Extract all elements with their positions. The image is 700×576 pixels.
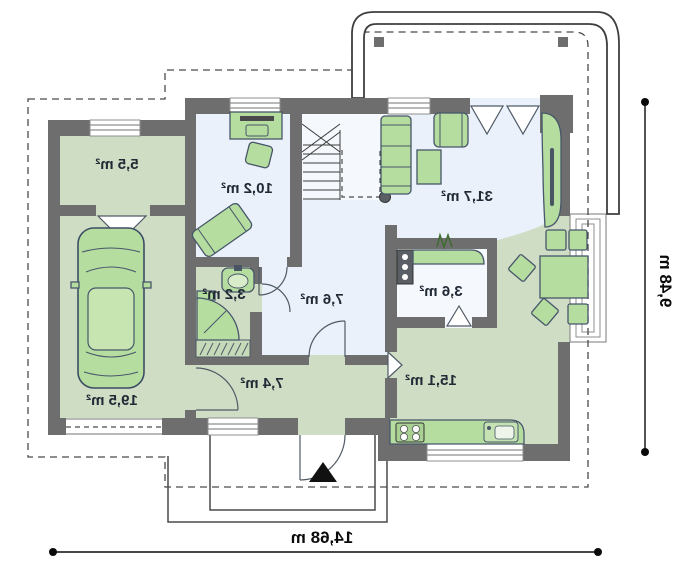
floor-plan-page: 14,68 m 9,48 m 5,5 m² 10,2 m² 31,7 m² 3,… bbox=[0, 0, 700, 576]
room-label-kitchen: 15,1 m² bbox=[405, 372, 457, 389]
dining-chair bbox=[546, 230, 566, 250]
dining-table bbox=[540, 256, 588, 298]
counter bbox=[413, 250, 484, 264]
window-corridor bbox=[208, 418, 258, 435]
cooktop bbox=[396, 423, 424, 442]
dining-chair bbox=[568, 304, 588, 324]
car-mirror bbox=[71, 282, 79, 288]
room-label-utility: 5,5 m² bbox=[95, 156, 138, 173]
room-label-hall: 7,6 m² bbox=[300, 291, 343, 308]
coffee-table bbox=[417, 150, 441, 184]
closet bbox=[196, 340, 250, 357]
dimension-height-label: 9,48 m bbox=[656, 255, 675, 308]
garage-car bbox=[71, 228, 151, 388]
dimension-bottom: 14,68 m bbox=[49, 528, 602, 556]
desk-lamp bbox=[240, 116, 274, 121]
dining-chair bbox=[569, 230, 587, 250]
window-living bbox=[388, 98, 430, 114]
basin-tap bbox=[234, 265, 242, 271]
kitchen-fixtures bbox=[390, 420, 524, 444]
armchair bbox=[434, 113, 468, 147]
dimension-right: 9,48 m bbox=[641, 98, 675, 456]
room-label-pantry: 3,6 m² bbox=[419, 283, 462, 300]
office-chair bbox=[245, 141, 274, 168]
room-label-corridor: 7,4 m² bbox=[240, 375, 283, 392]
room-label-study: 10,2 m² bbox=[221, 180, 273, 197]
room-label-bathroom: 3,2 m² bbox=[202, 286, 245, 303]
faucet bbox=[487, 426, 491, 430]
dimension-width-label: 14,68 m bbox=[291, 528, 353, 547]
living-sofa bbox=[381, 116, 411, 194]
room-label-garage: 19,5 m² bbox=[86, 392, 138, 409]
car-mirror bbox=[143, 282, 151, 288]
entrance-porch bbox=[168, 435, 387, 522]
window-utility bbox=[90, 120, 140, 136]
garage-door-opening bbox=[66, 418, 162, 435]
terrace-post bbox=[558, 37, 568, 47]
window-kitchen bbox=[427, 444, 523, 461]
room-label-living: 31,7 m² bbox=[441, 188, 493, 205]
sideboard-slat bbox=[550, 148, 554, 206]
floor-plan: 14,68 m 9,48 m 5,5 m² 10,2 m² 31,7 m² 3,… bbox=[0, 0, 700, 576]
terrace-post bbox=[374, 37, 384, 47]
